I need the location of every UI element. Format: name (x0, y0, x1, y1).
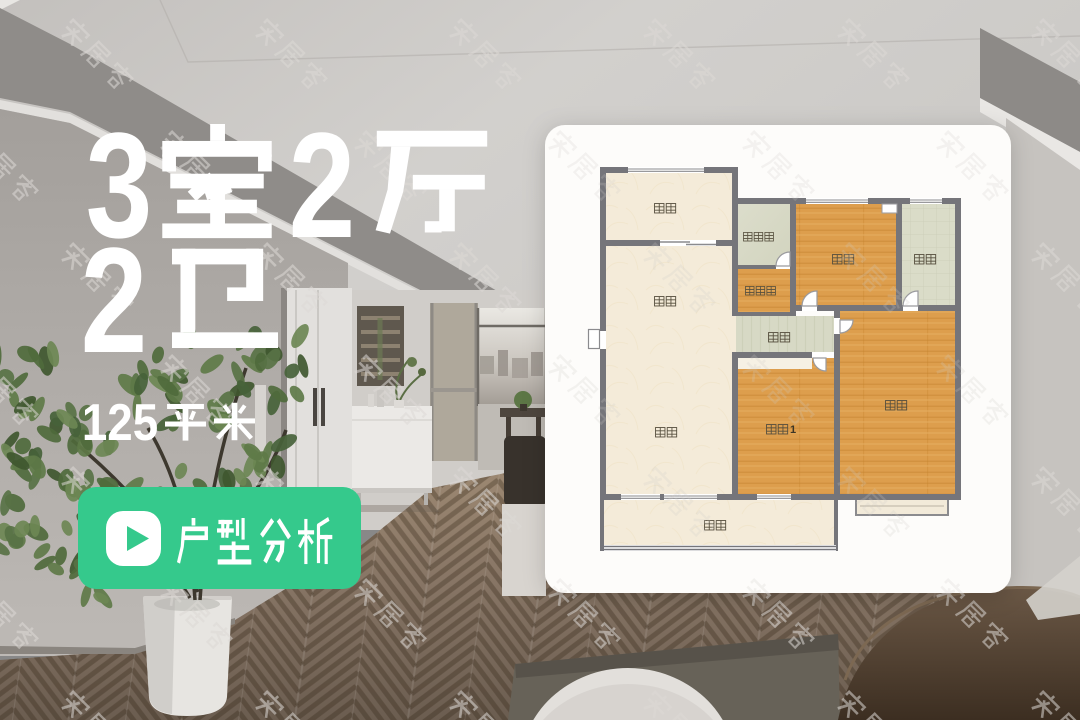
svg-text:125: 125 (82, 394, 158, 451)
svg-text:2: 2 (81, 216, 148, 384)
svg-text:2: 2 (289, 101, 356, 269)
svg-text:1: 1 (790, 424, 796, 436)
